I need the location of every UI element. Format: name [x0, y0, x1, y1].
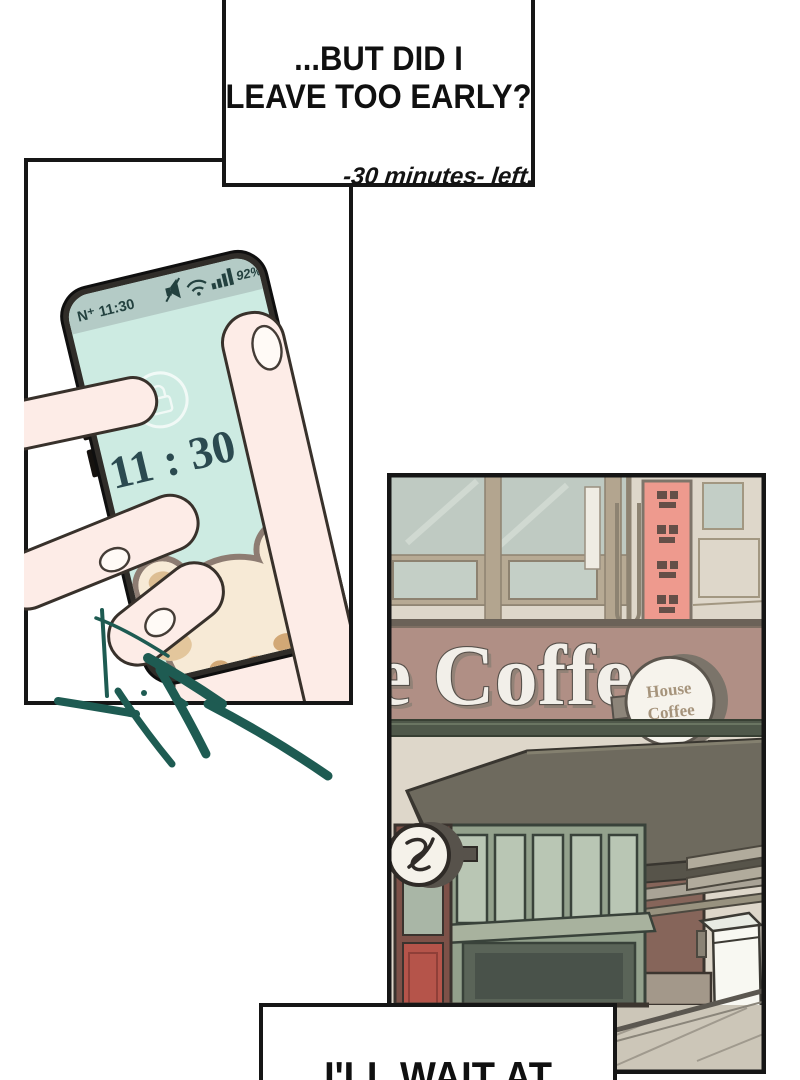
speech-bubble-bottom: I'LL WAIT AT	[259, 1003, 617, 1080]
panel-phone-scene: N⁺ 11:30	[24, 158, 370, 792]
vertical-banner-sign	[643, 481, 691, 627]
speech-bubble-top: ...BUT DID I LEAVE TOO EARLY?	[222, 0, 535, 187]
panel-coffee-shop-scene: e Coffee e Coffee House Coffee	[387, 473, 766, 1074]
dialogue-line: LEAVE TOO EARLY?	[225, 76, 531, 119]
comic-page: N⁺ 11:30	[0, 0, 800, 1080]
lower-panel	[475, 953, 623, 999]
upper-windows	[387, 473, 627, 623]
dialogue-line: ...BUT DID I	[294, 38, 463, 81]
dialogue-line: I'LL WAIT AT	[324, 1055, 552, 1080]
caption-minutes-left: -30 minutes- left.	[319, 163, 536, 191]
coffee-shop-art: e Coffee e Coffee House Coffee	[387, 473, 766, 1074]
beam	[387, 720, 766, 736]
